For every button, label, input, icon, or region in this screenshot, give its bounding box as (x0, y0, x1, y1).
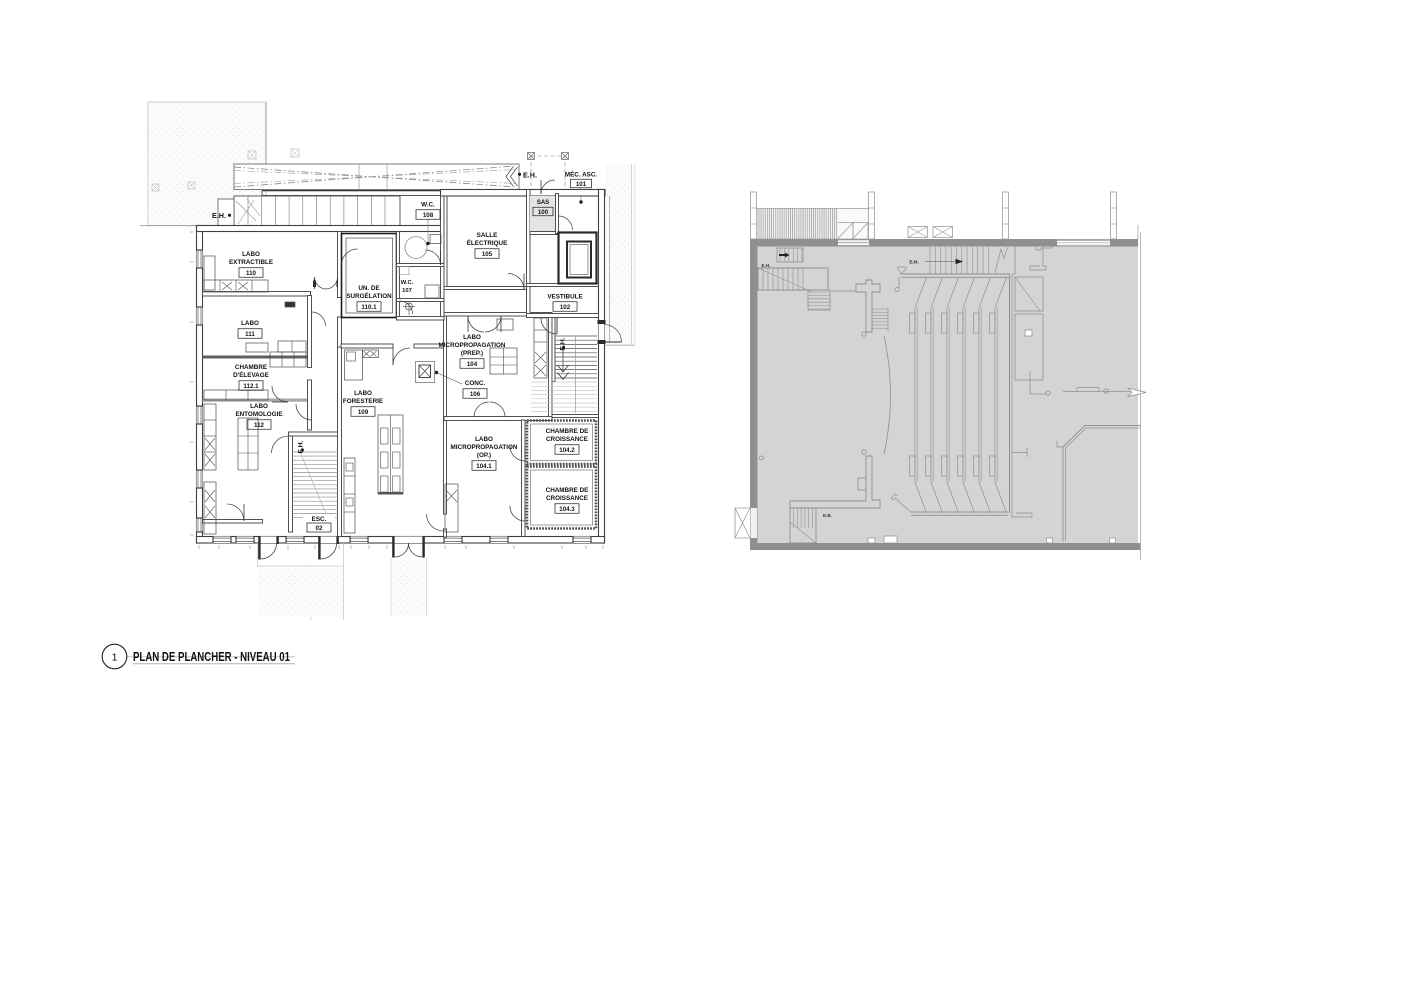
svg-text:LABO: LABO (463, 334, 481, 341)
svg-text:112: 112 (254, 422, 265, 429)
svg-text:W.C.: W.C. (421, 202, 435, 209)
svg-text:VESTIBULE: VESTIBULE (547, 294, 582, 301)
svg-text:101: 101 (576, 181, 587, 188)
svg-text:1: 1 (112, 652, 118, 664)
svg-text:110.1: 110.1 (361, 304, 377, 311)
svg-text:CONC.: CONC. (465, 380, 486, 387)
svg-text:CROISSANCE: CROISSANCE (546, 495, 588, 502)
svg-text:PLAN DE PLANCHER - NIVEAU 01: PLAN DE PLANCHER - NIVEAU 01 (133, 649, 290, 664)
svg-text:108: 108 (423, 212, 434, 219)
svg-text:MICROPROPAGATION: MICROPROPAGATION (439, 342, 506, 349)
svg-text:W.C.: W.C. (401, 280, 414, 286)
svg-text:107: 107 (402, 288, 412, 294)
svg-text:CROISSANCE: CROISSANCE (546, 436, 588, 443)
svg-text:D'ÉLEVAGE: D'ÉLEVAGE (233, 370, 269, 379)
svg-text:102: 102 (560, 304, 571, 311)
svg-text:FORESTERIE: FORESTERIE (343, 398, 383, 405)
svg-text:ENTOMOLOGIE: ENTOMOLOGIE (235, 411, 282, 418)
svg-text:CHAMBRE DE: CHAMBRE DE (546, 428, 589, 435)
svg-text:LABO: LABO (250, 403, 268, 410)
svg-text:105: 105 (482, 251, 493, 258)
svg-text:100: 100 (538, 209, 549, 216)
svg-text:109: 109 (358, 409, 369, 416)
svg-text:104.1: 104.1 (476, 463, 492, 470)
svg-text:MICROPROPAGATION: MICROPROPAGATION (451, 444, 518, 451)
svg-text:E.H.: E.H. (762, 263, 771, 268)
svg-text:LABO: LABO (242, 251, 260, 258)
svg-text:106: 106 (470, 391, 481, 398)
svg-text:LABO: LABO (354, 390, 372, 397)
svg-text:ÉLECTRIQUE: ÉLECTRIQUE (467, 238, 508, 247)
svg-text:LABO: LABO (475, 436, 493, 443)
svg-text:E.H.: E.H. (523, 171, 537, 180)
svg-text:CHAMBRE DE: CHAMBRE DE (546, 487, 589, 494)
svg-text:SALLE: SALLE (477, 232, 498, 239)
svg-text:E.H.: E.H. (212, 211, 226, 220)
svg-text:E.H.: E.H. (298, 440, 305, 453)
svg-text:LABO: LABO (241, 320, 259, 327)
svg-text:111: 111 (245, 331, 255, 338)
svg-text:MÉC. ASC.: MÉC. ASC. (565, 170, 598, 179)
svg-text:SURGÉLATION: SURGÉLATION (346, 291, 392, 300)
svg-text:104.3: 104.3 (559, 506, 575, 513)
svg-text:SAS: SAS (537, 200, 549, 206)
svg-text:104: 104 (467, 361, 478, 368)
svg-text:EXTRACTIBLE: EXTRACTIBLE (229, 259, 273, 266)
svg-text:E.H.: E.H. (909, 260, 918, 266)
svg-text:E.B.: E.B. (823, 513, 832, 518)
svg-text:UN. DE: UN. DE (358, 285, 379, 292)
svg-text:CHAMBRE: CHAMBRE (235, 364, 267, 371)
svg-text:112.1: 112.1 (243, 383, 259, 390)
svg-text:110: 110 (246, 270, 257, 277)
svg-text:(OP.): (OP.) (477, 452, 491, 459)
svg-text:104.2: 104.2 (559, 447, 575, 454)
svg-text:02: 02 (316, 525, 323, 532)
svg-text:ESC.: ESC. (312, 516, 327, 523)
svg-text:(PREP.): (PREP.) (461, 350, 483, 357)
